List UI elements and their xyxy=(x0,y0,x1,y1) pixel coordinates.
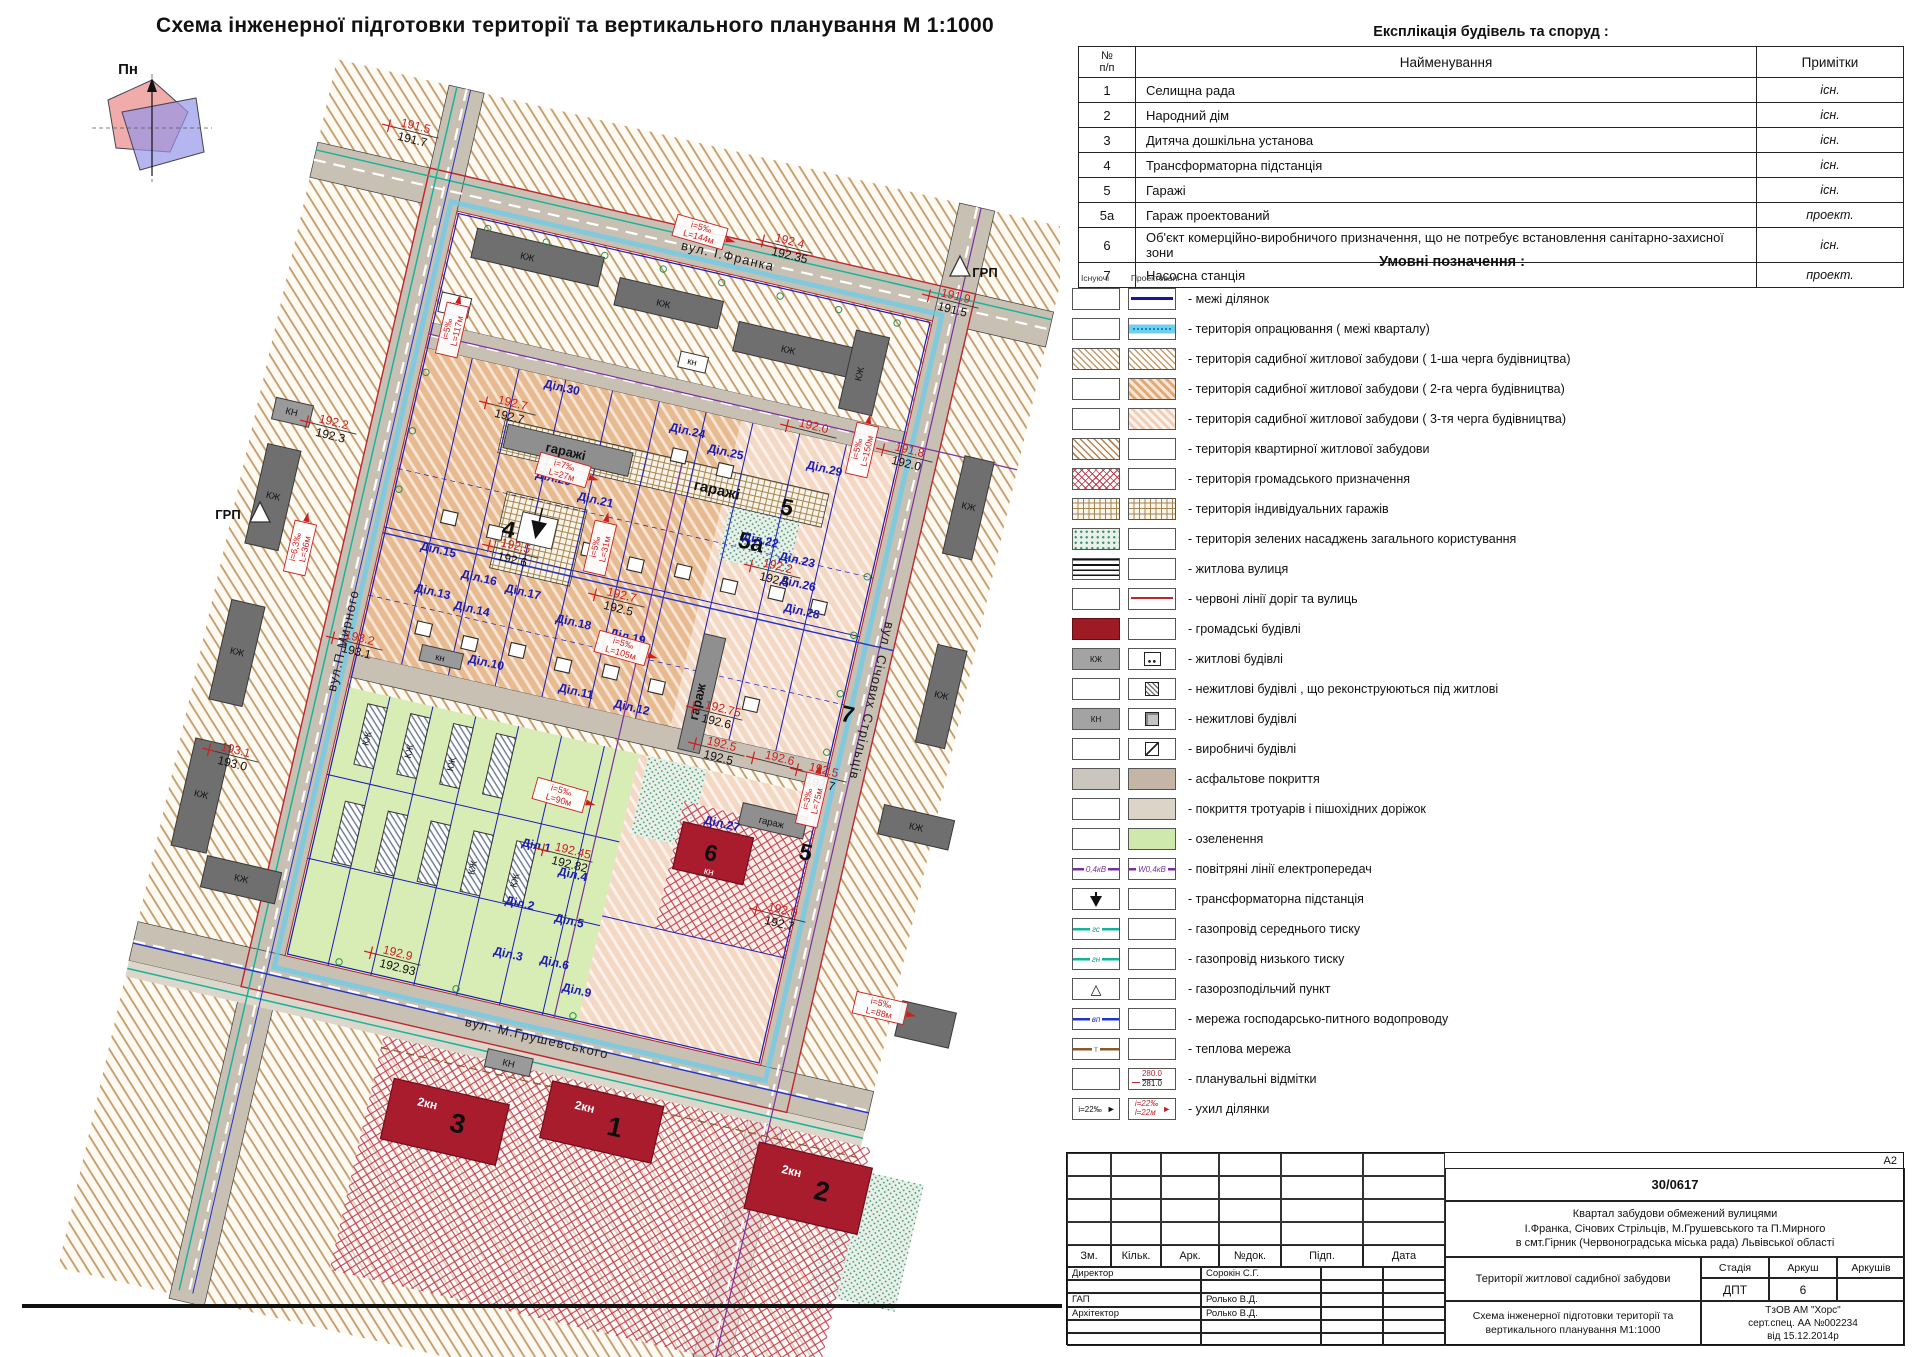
signature-cell: ГАП xyxy=(1067,1293,1201,1306)
cell-num: 4 xyxy=(1079,153,1136,178)
legend-label: - газорозподільчий пункт xyxy=(1188,982,1330,996)
legend-swatch-pr xyxy=(1128,678,1176,700)
title-block-right: А2 30/0617 Квартал забудови обмежений ву… xyxy=(1445,1153,1905,1344)
explication-row: 5аГараж проектованийпроект. xyxy=(1079,203,1904,228)
object-label: Території житлової садибної забудови xyxy=(1445,1257,1701,1301)
revision-empty-cell xyxy=(1363,1153,1445,1176)
legend-label: - житлова вулиця xyxy=(1188,562,1288,576)
legend-swatch-ex xyxy=(1072,348,1120,370)
cell-note: існ. xyxy=(1757,178,1904,203)
project-line: Квартал забудови обмежений вулицями xyxy=(1573,1207,1778,1222)
legend-label: - житлові будівлі xyxy=(1188,652,1283,666)
legend-swatch-pr xyxy=(1128,318,1176,340)
legend-label: - нежитлові будівлі xyxy=(1188,712,1297,726)
stage-value: ДПТ xyxy=(1701,1278,1769,1301)
scheme-line: Схема інженерної підготовки території та xyxy=(1473,1310,1674,1324)
rev-header-cell: Кільк. xyxy=(1111,1245,1161,1267)
project-description: Квартал забудови обмежений вулицями І.Фр… xyxy=(1445,1201,1905,1257)
legend-swatch-ex: КЖ xyxy=(1072,648,1120,670)
legend-swatch-ex xyxy=(1072,468,1120,490)
legend-swatch-pr: 280.0281.0 xyxy=(1128,1068,1176,1090)
legend-item: - асфальтове покриття xyxy=(1072,764,1912,794)
legend-swatch-ex: вп xyxy=(1072,1008,1120,1030)
legend-swatch-ex xyxy=(1072,378,1120,400)
signature-cell xyxy=(1321,1333,1383,1346)
legend-swatch-ex xyxy=(1072,828,1120,850)
legend-swatch-ex xyxy=(1072,408,1120,430)
col-header-num: № п/п xyxy=(1079,47,1136,78)
explication-row: 2Народний дімісн. xyxy=(1079,103,1904,128)
legend-swatch-ex xyxy=(1072,768,1120,790)
legend-swatch-ex xyxy=(1072,618,1120,640)
legend-swatch-pr xyxy=(1128,408,1176,430)
revision-empty-cell xyxy=(1219,1199,1281,1222)
legend-label: - нежитлові будівлі , що реконструюються… xyxy=(1188,682,1498,696)
legend-swatch-pr xyxy=(1128,828,1176,850)
legend-swatch-pr xyxy=(1128,588,1176,610)
legend-swatch-pr xyxy=(1128,498,1176,520)
legend-label: - територія громадського призначення xyxy=(1188,472,1410,486)
rev-header-cell: Арк. xyxy=(1161,1245,1219,1267)
legend-swatch-ex xyxy=(1072,888,1120,910)
legend-swatch-ex xyxy=(1072,1068,1120,1090)
revision-empty-cell xyxy=(1219,1222,1281,1245)
legend-label: - повітряні лінії електропередач xyxy=(1188,862,1372,876)
legend-label: - ухил ділянки xyxy=(1188,1102,1269,1116)
signature-cell xyxy=(1383,1293,1445,1306)
legend-item: - територія садибної житлової забудови (… xyxy=(1072,404,1912,434)
sheet-frame-line xyxy=(22,1304,1062,1308)
legend-label: - виробничі будівлі xyxy=(1188,742,1296,756)
legend-title: Умовні позначення : xyxy=(1242,254,1662,270)
map-label: ГРП xyxy=(972,265,997,280)
title-block-left: Зм.Кільк.Арк.№док.Підп.Дата ДиректорСоро… xyxy=(1067,1153,1445,1344)
legend-rows: - межі ділянок- територія опрацювання ( … xyxy=(1072,284,1912,1124)
legend-label: - мережа господарсько-питного водопровод… xyxy=(1188,1012,1448,1026)
cell-name: Селищна рада xyxy=(1136,78,1757,103)
explication-row: 4Трансформаторна підстанціяісн. xyxy=(1079,153,1904,178)
scheme-label: Схема інженерної підготовки території та… xyxy=(1445,1301,1701,1346)
legend-swatch-pr xyxy=(1128,618,1176,640)
legend-item: - житлова вулиця xyxy=(1072,554,1912,584)
legend-label: - асфальтове покриття xyxy=(1188,772,1320,786)
revision-empty-cell xyxy=(1111,1176,1161,1199)
legend-label: - озеленення xyxy=(1188,832,1263,846)
explication-row: 5Гаражіісн. xyxy=(1079,178,1904,203)
signature-cell: Ролько В.Д. xyxy=(1201,1293,1321,1306)
legend-swatch-pr xyxy=(1128,738,1176,760)
sheets-header: Аркушів xyxy=(1837,1257,1905,1278)
legend-item: - озеленення xyxy=(1072,824,1912,854)
cell-num: 5а xyxy=(1079,203,1136,228)
legend-label: - територія садибної житлової забудови (… xyxy=(1188,382,1565,396)
legend-swatch-ex: КН xyxy=(1072,708,1120,730)
legend-item: КН- нежитлові будівлі xyxy=(1072,704,1912,734)
north-rose xyxy=(92,74,212,182)
map-label: Пн xyxy=(118,61,138,78)
signature-cell xyxy=(1383,1307,1445,1320)
revision-empty-cell xyxy=(1067,1153,1111,1176)
explication-row: 3Дитяча дошкільна установаісн. xyxy=(1079,128,1904,153)
signature-cell xyxy=(1321,1307,1383,1320)
signature-cell xyxy=(1383,1320,1445,1333)
legend-swatch-ex: гн xyxy=(1072,948,1120,970)
legend-swatch-pr xyxy=(1128,798,1176,820)
legend-item: і=22‰і=22‰l=22м- ухил ділянки xyxy=(1072,1094,1912,1124)
signature-cell xyxy=(1321,1267,1383,1280)
explication: Експлікація будівель та споруд : № п/п Н… xyxy=(1078,24,1904,288)
legend-label: - громадські будівлі xyxy=(1188,622,1301,636)
legend-label: - територія садибної житлової забудови (… xyxy=(1188,412,1566,426)
revision-empty-cell xyxy=(1281,1199,1363,1222)
cell-note: існ. xyxy=(1757,78,1904,103)
legend-item: - газорозподільчий пункт xyxy=(1072,974,1912,1004)
legend-item: - покриття тротуарів і пішохідних доріжо… xyxy=(1072,794,1912,824)
legend-swatch-pr xyxy=(1128,468,1176,490)
signature-cell: Директор xyxy=(1067,1267,1201,1280)
signature-cell xyxy=(1201,1333,1321,1346)
legend-item: - територія громадського призначення xyxy=(1072,464,1912,494)
revision-empty-cell xyxy=(1067,1222,1111,1245)
legend-item: 0,4кВW0,4кВ- повітряні лінії електропере… xyxy=(1072,854,1912,884)
cell-note: існ. xyxy=(1757,128,1904,153)
org-line: ТзОВ АМ "Хорс" xyxy=(1765,1304,1840,1317)
revision-empty-cell xyxy=(1281,1176,1363,1199)
rev-header-cell: Дата xyxy=(1363,1245,1445,1267)
revision-empty-cell xyxy=(1111,1153,1161,1176)
legend-item: - червоні лінії доріг та вулиць xyxy=(1072,584,1912,614)
signature-cell: Ролько В.Д. xyxy=(1201,1307,1321,1320)
legend-swatch-ex xyxy=(1072,798,1120,820)
legend-label: - територія квартирної житлової забудови xyxy=(1188,442,1430,456)
org-line: від 15.12.2014р xyxy=(1767,1330,1839,1343)
rev-header-cell: №док. xyxy=(1219,1245,1281,1267)
signature-cell xyxy=(1321,1320,1383,1333)
legend-swatch-pr xyxy=(1128,708,1176,730)
legend-label: - червоні лінії доріг та вулиць xyxy=(1188,592,1358,606)
legend-label: - територія садибної житлової забудови (… xyxy=(1188,352,1571,366)
legend-swatch-ex: і=22‰ xyxy=(1072,1098,1120,1120)
cell-note: існ. xyxy=(1757,153,1904,178)
doc-code: 30/0617 xyxy=(1445,1168,1905,1201)
signature-cell xyxy=(1201,1280,1321,1293)
legend-swatch-pr: W0,4кВ xyxy=(1128,858,1176,880)
legend-col-exist: Існуючі xyxy=(1072,273,1118,283)
map-label: ГРП xyxy=(215,507,240,522)
cell-num: 2 xyxy=(1079,103,1136,128)
legend-swatch-ex: гс xyxy=(1072,918,1120,940)
explication-table: № п/п Найменування Примітки 1Селищна рад… xyxy=(1078,46,1904,288)
legend-item: гн- газопровід низького тиску xyxy=(1072,944,1912,974)
legend-item: 280.0281.0- планувальні відмітки xyxy=(1072,1064,1912,1094)
cell-name: Гаражі xyxy=(1136,178,1757,203)
legend-swatch-ex xyxy=(1072,978,1120,1000)
cell-note: проект. xyxy=(1757,203,1904,228)
legend-label: - теплова мережа xyxy=(1188,1042,1291,1056)
signature-cell: Сорокін С.Г. xyxy=(1201,1267,1321,1280)
project-line: в смт.Гірник (Червоноградська міська рад… xyxy=(1516,1236,1835,1251)
signature-cell: Архітектор xyxy=(1067,1307,1201,1320)
rev-header: Зм.Кільк.Арк.№док.Підп.Дата xyxy=(1067,1245,1445,1267)
legend-item: - громадські будівлі xyxy=(1072,614,1912,644)
cell-name: Народний дім xyxy=(1136,103,1757,128)
legend-label: - територія зелених насаджень загального… xyxy=(1188,532,1516,546)
legend-swatch-ex: 0,4кВ xyxy=(1072,858,1120,880)
legend-col-proj: Проектовані xyxy=(1126,273,1184,283)
cell-note: існ. xyxy=(1757,103,1904,128)
signature-cell xyxy=(1321,1280,1383,1293)
rev-header-cell: Зм. xyxy=(1067,1245,1111,1267)
cell-name: Гараж проектований xyxy=(1136,203,1757,228)
rev-header-cell: Підп. xyxy=(1281,1245,1363,1267)
signature-cell xyxy=(1067,1320,1201,1333)
legend-swatch-ex xyxy=(1072,678,1120,700)
signature-cell xyxy=(1383,1333,1445,1346)
drawing-title: Схема інженерної підготовки території та… xyxy=(150,14,1000,38)
legend-label: - територія опрацювання ( межі кварталу) xyxy=(1188,322,1430,336)
revision-empty-cell xyxy=(1363,1199,1445,1222)
legend-label: - планувальні відмітки xyxy=(1188,1072,1316,1086)
stage-header: Стадія xyxy=(1701,1257,1769,1278)
legend-item: - територія квартирної житлової забудови xyxy=(1072,434,1912,464)
legend-swatch-ex xyxy=(1072,438,1120,460)
legend-item: - територія садибної житлової забудови (… xyxy=(1072,344,1912,374)
sheet-header: Аркуш xyxy=(1769,1257,1837,1278)
revision-empty-cell xyxy=(1067,1176,1111,1199)
revision-empty-cell xyxy=(1161,1222,1219,1245)
revision-empty-cell xyxy=(1281,1153,1363,1176)
legend-swatch-pr xyxy=(1128,768,1176,790)
legend-label: - територія індивідуальних гаражів xyxy=(1188,502,1389,516)
legend-swatch-pr xyxy=(1128,1038,1176,1060)
legend-label: - трансформаторна підстанція xyxy=(1188,892,1364,906)
legend-item: - нежитлові будівлі , що реконструюються… xyxy=(1072,674,1912,704)
cell-num: 3 xyxy=(1079,128,1136,153)
sheets-value xyxy=(1837,1278,1905,1301)
legend-swatch-pr xyxy=(1128,918,1176,940)
legend-swatch-ex xyxy=(1072,318,1120,340)
org-line: серт.спец. АА №002234 xyxy=(1748,1317,1858,1330)
revision-empty-cell xyxy=(1281,1222,1363,1245)
revision-empty-cell xyxy=(1067,1199,1111,1222)
revision-empty-cell xyxy=(1219,1176,1281,1199)
legend-label: - газопровід середнього тиску xyxy=(1188,922,1360,936)
legend-swatch-pr xyxy=(1128,558,1176,580)
legend-item: - межі ділянок xyxy=(1072,284,1912,314)
legend-swatch-ex xyxy=(1072,588,1120,610)
quarter-plan: вул. І.Франкавул. М.Грушевськоговул.П.Ми… xyxy=(57,59,1060,1357)
legend-swatch-pr xyxy=(1128,1008,1176,1030)
legend-swatch-pr xyxy=(1128,528,1176,550)
legend-label: - газопровід низького тиску xyxy=(1188,952,1344,966)
signature-cell xyxy=(1321,1293,1383,1306)
legend-item: - виробничі будівлі xyxy=(1072,734,1912,764)
legend-label: - межі ділянок xyxy=(1188,292,1269,306)
revision-empty-cell xyxy=(1161,1199,1219,1222)
legend: Умовні позначення : Існуючі Проектовані … xyxy=(1072,254,1912,1124)
legend-swatch-pr xyxy=(1128,948,1176,970)
legend-column-headers: Існуючі Проектовані xyxy=(1072,273,1912,283)
col-header-note: Примітки xyxy=(1757,47,1904,78)
legend-swatch-pr xyxy=(1128,348,1176,370)
explication-row: 1Селищна радаісн. xyxy=(1079,78,1904,103)
revision-empty-cell xyxy=(1363,1176,1445,1199)
legend-item: - територія садибної житлової забудови (… xyxy=(1072,374,1912,404)
legend-swatch-pr xyxy=(1128,648,1176,670)
legend-swatch-ex: т xyxy=(1072,1038,1120,1060)
col-header-name: Найменування xyxy=(1136,47,1757,78)
cell-num: 1 xyxy=(1079,78,1136,103)
legend-swatch-ex xyxy=(1072,528,1120,550)
drawing-sheet: вул. І.Франкавул. М.Грушевськоговул.П.Ми… xyxy=(0,0,1920,1357)
legend-swatch-ex xyxy=(1072,558,1120,580)
revision-empty-cell xyxy=(1363,1222,1445,1245)
legend-swatch-ex xyxy=(1072,288,1120,310)
project-line: І.Франка, Січових Стрільців, М.Грушевськ… xyxy=(1525,1222,1826,1237)
cell-name: Трансформаторна підстанція xyxy=(1136,153,1757,178)
legend-swatch-pr xyxy=(1128,888,1176,910)
legend-swatch-ex xyxy=(1072,498,1120,520)
cell-name: Дитяча дошкільна установа xyxy=(1136,128,1757,153)
scheme-line: вертикального планування М1:1000 xyxy=(1486,1324,1661,1338)
revision-empty-cell xyxy=(1161,1176,1219,1199)
legend-item: гс- газопровід середнього тиску xyxy=(1072,914,1912,944)
signature-cell xyxy=(1201,1320,1321,1333)
signature-cell xyxy=(1067,1280,1201,1293)
title-block: Зм.Кільк.Арк.№док.Підп.Дата ДиректорСоро… xyxy=(1066,1152,1904,1345)
signature-cell xyxy=(1067,1333,1201,1346)
legend-item: - територія опрацювання ( межі кварталу) xyxy=(1072,314,1912,344)
legend-swatch-pr: і=22‰l=22м xyxy=(1128,1098,1176,1120)
signature-cell xyxy=(1383,1280,1445,1293)
legend-swatch-ex xyxy=(1072,738,1120,760)
legend-item: - трансформаторна підстанція xyxy=(1072,884,1912,914)
cell-num: 5 xyxy=(1079,178,1136,203)
legend-item: - територія індивідуальних гаражів xyxy=(1072,494,1912,524)
legend-item: КЖ- житлові будівлі xyxy=(1072,644,1912,674)
revision-empty-cell xyxy=(1219,1153,1281,1176)
legend-swatch-pr xyxy=(1128,378,1176,400)
legend-swatch-pr xyxy=(1128,978,1176,1000)
sheet-value: 6 xyxy=(1769,1278,1837,1301)
explication-title: Експлікація будівель та споруд : xyxy=(1078,24,1904,40)
signature-cell xyxy=(1383,1267,1445,1280)
revision-empty-cell xyxy=(1111,1199,1161,1222)
legend-item: т- теплова мережа xyxy=(1072,1034,1912,1064)
sheet-format: А2 xyxy=(1445,1153,1905,1168)
site-plan: вул. І.Франкавул. М.Грушевськоговул.П.Ми… xyxy=(0,0,1060,1357)
revision-empty-cell xyxy=(1161,1153,1219,1176)
legend-item: - територія зелених насаджень загального… xyxy=(1072,524,1912,554)
legend-swatch-pr xyxy=(1128,438,1176,460)
legend-item: вп- мережа господарсько-питного водопров… xyxy=(1072,1004,1912,1034)
revision-empty-cell xyxy=(1111,1222,1161,1245)
legend-label: - покриття тротуарів і пішохідних доріжо… xyxy=(1188,802,1426,816)
organization: ТзОВ АМ "Хорс" серт.спец. АА №002234 від… xyxy=(1701,1301,1905,1346)
legend-swatch-pr xyxy=(1128,288,1176,310)
